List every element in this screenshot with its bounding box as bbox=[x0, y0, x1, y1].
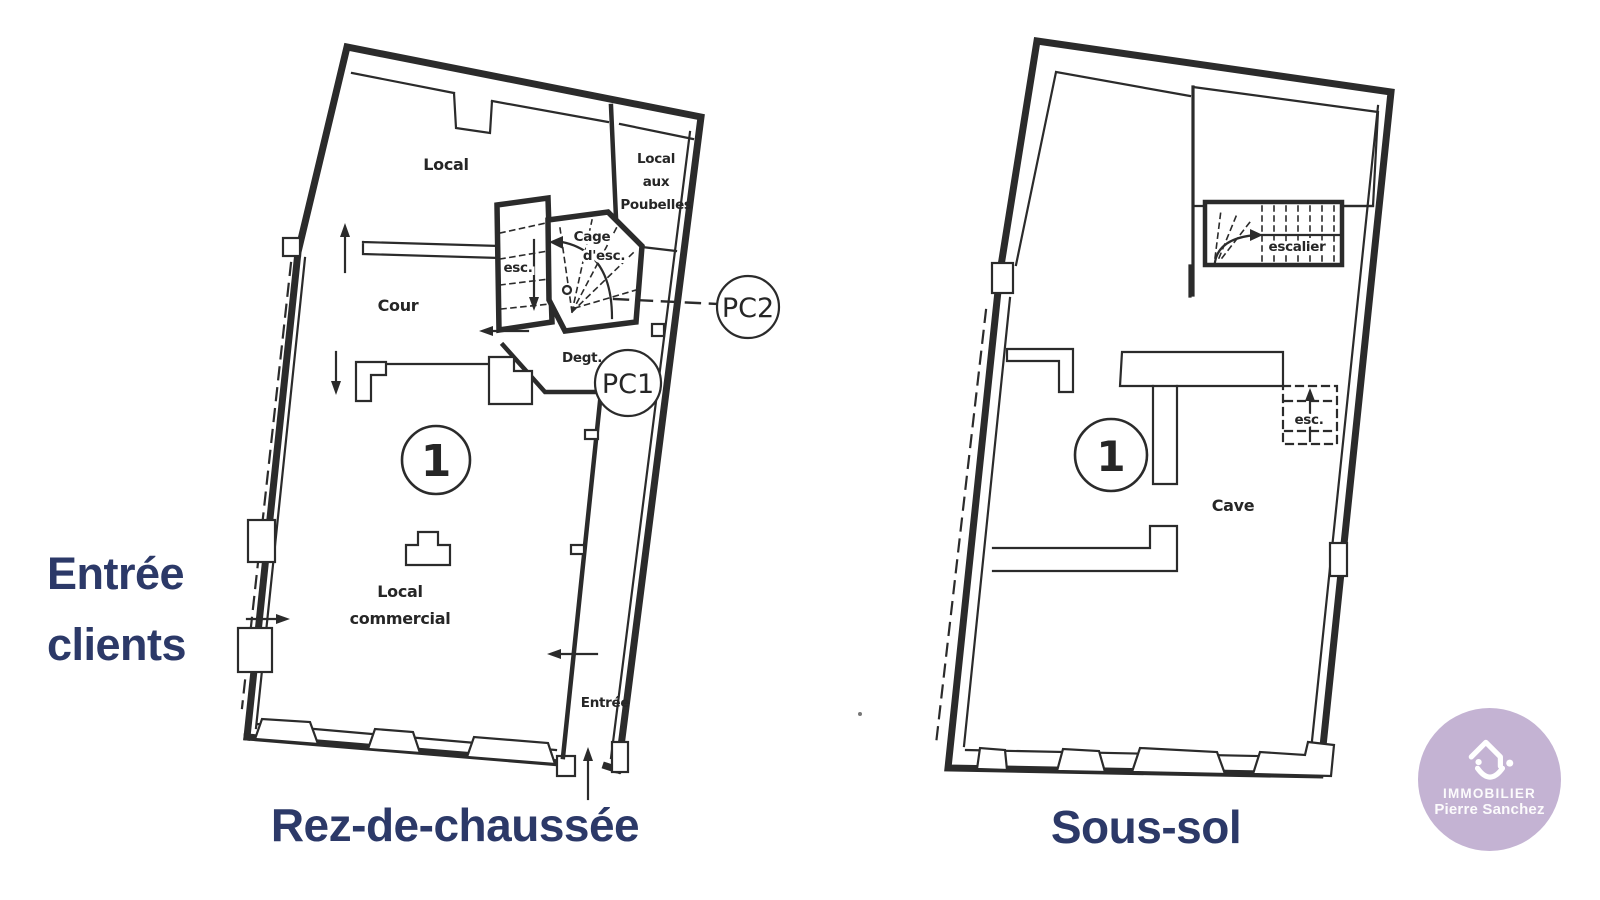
logo-text-immobilier: IMMOBILIER bbox=[1443, 786, 1536, 801]
gf-label-unit: 1 bbox=[421, 436, 452, 487]
gf-fixture bbox=[406, 532, 450, 565]
gf-label-cage-1: Cage bbox=[574, 229, 611, 245]
gf-label-local: Local bbox=[423, 155, 468, 174]
gf-label-cour: Cour bbox=[378, 296, 419, 315]
bs-right-wall-jog bbox=[1330, 543, 1347, 576]
gf-trash-room-closure bbox=[642, 247, 676, 251]
gf-label-entrance: Entrée bbox=[581, 695, 630, 711]
gf-label-pc2: PC2 bbox=[722, 293, 774, 324]
bs-wall-lower bbox=[993, 526, 1177, 571]
ground-floor-plan: Local Local aux Poubelles Cage d'esc. es… bbox=[238, 47, 779, 799]
basement-caption: Sous-sol bbox=[946, 800, 1346, 854]
agency-logo: IMMOBILIER Pierre Sanchez bbox=[1418, 708, 1561, 851]
floor-plan-page: Local Local aux Poubelles Cage d'esc. es… bbox=[0, 0, 1600, 900]
plans-drawing: Local Local aux Poubelles Cage d'esc. es… bbox=[0, 0, 1600, 900]
bs-wall-t-stem bbox=[1153, 386, 1177, 484]
gf-door-tick-2 bbox=[571, 545, 584, 554]
bs-label-cave: Cave bbox=[1212, 496, 1255, 515]
house-smile-icon bbox=[1463, 734, 1517, 786]
bs-wall-notch bbox=[992, 263, 1013, 293]
bs-wall-t-bar bbox=[1120, 352, 1283, 386]
client-entrance-line-2: clients bbox=[47, 609, 186, 680]
bs-stair-zone-wall bbox=[1190, 87, 1193, 296]
gf-wall-tick bbox=[652, 324, 664, 336]
bs-dashed-boundary bbox=[936, 310, 986, 744]
bs-wall-left-room bbox=[1007, 349, 1073, 392]
gf-arrow-court-up bbox=[340, 223, 350, 272]
gf-label-commercial-1: Local bbox=[377, 582, 422, 601]
gf-label-esc: esc. bbox=[503, 260, 532, 276]
gf-wall-jog bbox=[283, 238, 300, 256]
bs-staircase bbox=[1205, 202, 1373, 265]
gf-door-tick-1 bbox=[585, 430, 598, 439]
ground-floor-caption: Rez-de-chaussée bbox=[175, 798, 735, 852]
bs-outer-wall bbox=[948, 41, 1391, 775]
gf-facade-windows bbox=[255, 719, 628, 776]
gf-left-window-1 bbox=[248, 520, 275, 562]
bs-label-esc: esc. bbox=[1294, 412, 1323, 428]
gf-label-pc1: PC1 bbox=[602, 369, 654, 400]
gf-pillar-left bbox=[356, 362, 386, 401]
gf-label-degt: Degt. bbox=[562, 350, 602, 366]
gf-left-window-2 bbox=[238, 628, 272, 672]
bs-label-escalier: escalier bbox=[1269, 239, 1327, 255]
gf-label-poubelles-3: Poubelles bbox=[620, 197, 692, 213]
gf-pillar-right bbox=[489, 357, 532, 404]
gf-label-poubelles-1: Local bbox=[637, 151, 675, 167]
basement-plan: escalier esc. 1 C bbox=[936, 41, 1391, 776]
bs-hatched-area bbox=[1193, 87, 1378, 206]
gf-label-cage-2: d'esc. bbox=[583, 248, 625, 264]
client-entrance-line-1: Entrée bbox=[47, 538, 186, 609]
logo-text-agent-name: Pierre Sanchez bbox=[1434, 801, 1544, 818]
gf-label-poubelles-2: aux bbox=[643, 174, 670, 190]
client-entrance-annotation: Entrée clients bbox=[47, 538, 186, 680]
scan-speck bbox=[858, 712, 862, 716]
gf-trash-room-wall bbox=[611, 106, 616, 218]
gf-top-notch bbox=[454, 93, 492, 133]
bs-label-unit: 1 bbox=[1096, 432, 1125, 481]
gf-label-commercial-2: commercial bbox=[350, 609, 451, 628]
gf-corridor-wall bbox=[363, 242, 500, 258]
gf-arrow-entrance-up bbox=[583, 747, 593, 799]
gf-arrow-court-down bbox=[331, 352, 341, 395]
